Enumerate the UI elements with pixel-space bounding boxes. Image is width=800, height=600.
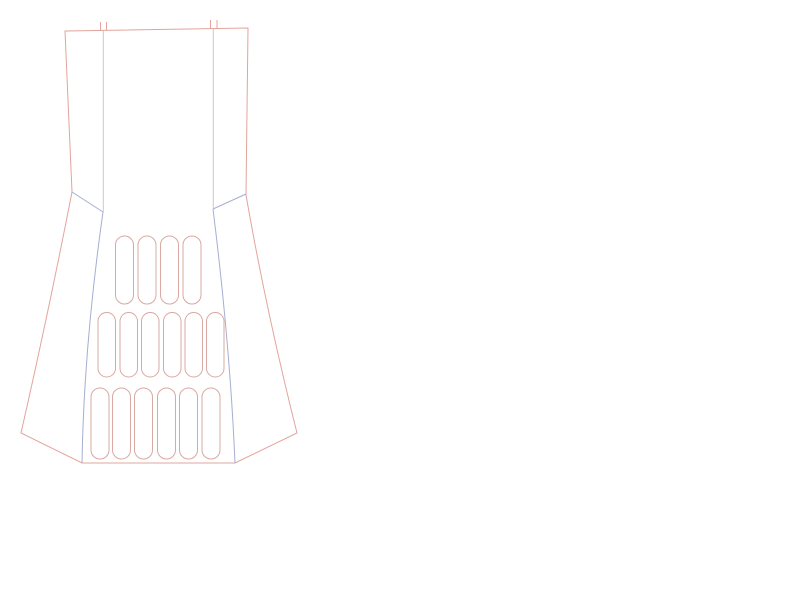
panel-seam-left: [82, 212, 103, 463]
slot-row-bottom-slot: [180, 388, 198, 459]
pattern-drawing-canvas[interactable]: [0, 0, 800, 600]
slot-row-top-slot: [138, 236, 156, 304]
outer-outline: [21, 28, 297, 463]
slot-grid: [91, 236, 224, 459]
slot-row-middle-slot: [207, 313, 225, 378]
outline-layer: [21, 20, 297, 463]
slot-row-top-slot: [161, 236, 179, 304]
slot-row-middle-slot: [185, 313, 203, 378]
shoulder-seam-left: [72, 192, 103, 212]
slot-row-bottom-slot: [135, 388, 153, 459]
slot-row-bottom-slot: [113, 388, 131, 459]
slot-row-bottom-slot: [91, 388, 109, 459]
slot-row-middle-slot: [142, 313, 160, 378]
slot-row-top-slot: [183, 236, 201, 304]
slot-row-middle-slot: [120, 313, 138, 378]
shoulder-seam-right: [213, 194, 246, 209]
slot-row-top-slot: [116, 236, 134, 304]
slot-row-middle-slot: [98, 313, 116, 378]
white-canvas-background: [0, 0, 800, 600]
slot-row-bottom-slot: [158, 388, 176, 459]
slot-row-middle-slot: [164, 313, 182, 378]
slot-row-bottom-slot: [202, 388, 220, 459]
